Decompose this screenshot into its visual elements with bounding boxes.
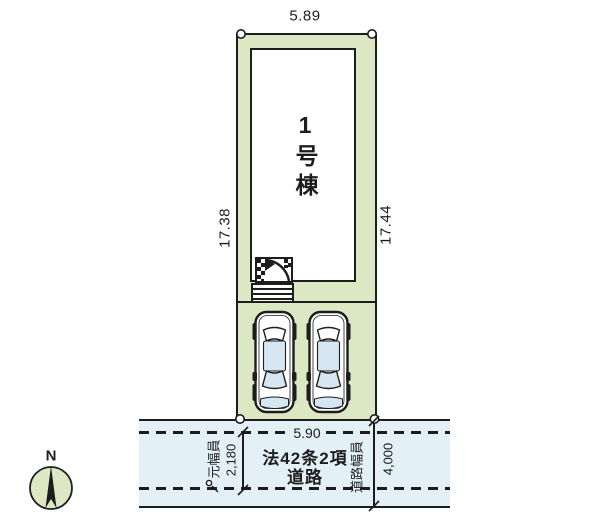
dim-frontage: 5.90	[289, 426, 324, 440]
original-width-label: 元幅員	[208, 439, 221, 478]
dim-top-width: 5.89	[289, 9, 320, 24]
entrance-porch-icon	[255, 257, 293, 283]
road-width-dimension-line	[373, 420, 375, 507]
site-plan-canvas: 5.89 17.38 17.44 5.90 元幅員 2,180 道路幅員 4,0…	[0, 0, 600, 530]
compass-icon	[30, 466, 72, 509]
road-type-line1: 法42条2項	[262, 449, 347, 468]
car-icon	[252, 310, 297, 414]
dim-road-width: 4,000	[382, 443, 395, 476]
compass-needle	[46, 466, 57, 508]
car-icon	[306, 310, 351, 414]
dim-left-depth: 17.38	[218, 208, 233, 248]
dim-right-depth: 17.44	[379, 205, 394, 245]
road-edge-dashed-line	[139, 487, 450, 490]
road-type-line2: 道路	[262, 468, 347, 487]
entrance-steps-icon	[251, 283, 294, 303]
road-type-label: 法42条2項 道路	[262, 449, 347, 487]
compass-north-label: N	[46, 448, 57, 465]
original-width-dimension-line	[242, 432, 244, 490]
road-width-label: 道路幅員	[351, 441, 364, 493]
dim-original-road-width: 2,180	[225, 444, 238, 477]
building-number-label: 1号棟	[288, 112, 322, 202]
